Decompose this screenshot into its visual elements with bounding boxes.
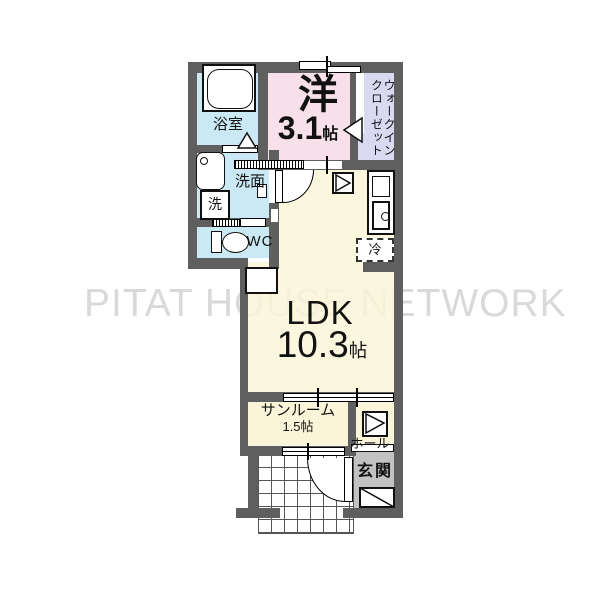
wall-segment [363,262,394,272]
floor-plan: PITAT HOUSE NETWORK [0,0,600,600]
ldk-area: 10.3帖 [262,326,382,365]
door-leaf [275,170,283,203]
bathtub-inner [207,69,253,109]
washroom-label: 洗面 [228,174,272,190]
window-sunroom-porch [282,447,345,456]
wall-niche [271,209,278,222]
toilet-tank-icon [211,231,222,253]
bathtub-icon [202,64,256,112]
wc-sliding-door [240,218,266,227]
refrigerator-label: 冷 [356,243,394,257]
kitchen-counter-icon [367,170,395,235]
hall-door-symbol [362,411,388,437]
counter-box [245,267,278,294]
kitchen-sink-icon [372,201,390,230]
wc-label: WC [242,234,278,250]
window-tick [356,388,358,407]
kitchen-faucet-icon [381,212,390,221]
sink-icon [196,152,225,190]
wall-segment [188,258,245,269]
entrance-label: 玄関 [355,464,395,481]
ldk-area-value: 10.3 [277,324,349,365]
storage-door-symbol [332,172,354,194]
closet-label-line1: ウォークイン [382,77,395,159]
bath-door-bar [222,145,258,153]
bathroom-label: 浴室 [204,117,252,133]
faucet-icon [200,157,208,165]
window-ldk-sunroom [283,393,394,402]
door-opening [304,161,342,169]
sliding-door-hatch [212,219,240,227]
sunroom-area: 1.5帖 [252,420,344,434]
entrance-door-leaf [344,457,353,502]
ldk-area-unit: 帖 [349,340,368,361]
bedroom-area-unit: 帖 [322,126,338,143]
walk-in-closet-label: ウォークイン クローゼット [357,77,395,159]
washing-machine-label: 洗 [200,197,230,212]
closet-label-line2: クローゼット [370,77,383,159]
sliding-door-hatch [234,160,304,169]
bedroom-area: 3.1帖 [266,112,350,146]
shoe-cabinet-icon [359,487,395,508]
bedroom-area-value: 3.1 [278,110,322,146]
window [327,66,361,73]
sunroom-label: サンルーム [252,403,344,419]
wall-segment [236,508,280,518]
window-tick [307,443,309,460]
hall-label: ホール [344,437,396,451]
kitchen-cabinet-icon [372,176,390,197]
window-tick [326,156,328,174]
